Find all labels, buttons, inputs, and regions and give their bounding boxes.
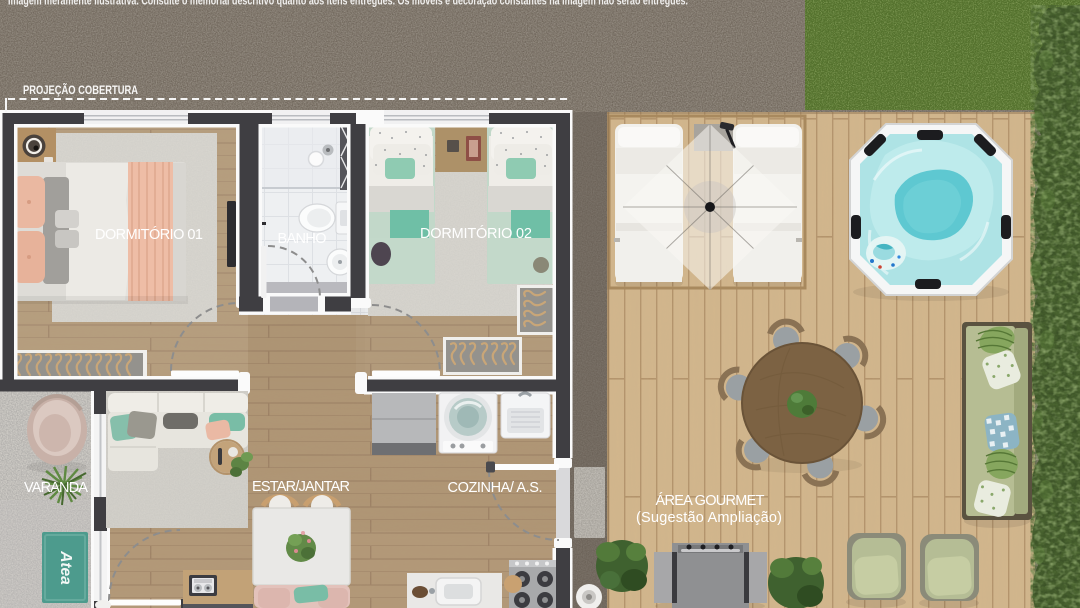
svg-text:ESTAR/JANTAR: ESTAR/JANTAR — [252, 479, 350, 495]
svg-text:DORMITÓRIO 01: DORMITÓRIO 01 — [95, 226, 203, 243]
svg-text:ÁREA GOURMET: ÁREA GOURMET — [656, 492, 765, 509]
svg-text:Imagem meramente ilustrativa.: Imagem meramente ilustrativa. Consulte o… — [8, 0, 688, 8]
svg-text:Atea: Atea — [57, 550, 74, 585]
svg-text:BANHO: BANHO — [278, 231, 327, 247]
svg-text:VARANDA: VARANDA — [24, 480, 88, 496]
svg-text:COZINHA/ A.S.: COZINHA/ A.S. — [448, 480, 543, 496]
svg-text:(Sugestão Ampliação): (Sugestão Ampliação) — [636, 510, 782, 526]
svg-text:PROJEÇÃO COBERTURA: PROJEÇÃO COBERTURA — [23, 84, 138, 97]
svg-text:DORMITÓRIO 02: DORMITÓRIO 02 — [420, 225, 532, 242]
